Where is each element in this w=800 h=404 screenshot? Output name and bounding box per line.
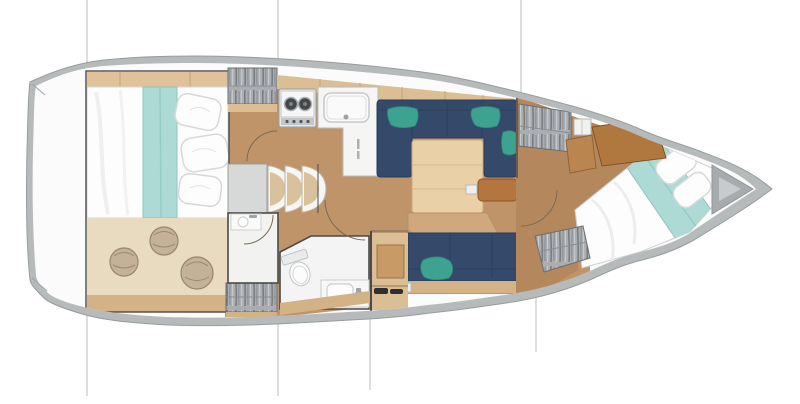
wardrobe-trim	[228, 104, 277, 112]
knob-icon	[292, 120, 295, 123]
companionway-landing	[228, 164, 267, 213]
fridge-handle	[357, 139, 360, 149]
ottoman-handle	[466, 185, 477, 194]
knob-icon	[285, 120, 288, 123]
stove	[279, 89, 316, 127]
floorplan-canvas	[0, 0, 800, 404]
settee-cushion-teal	[471, 107, 500, 128]
yacht-floorplan	[0, 0, 800, 404]
aft-cabin	[86, 71, 230, 312]
ottoman	[478, 179, 517, 201]
salon-table	[412, 140, 483, 213]
pillow	[177, 173, 222, 208]
sink-drain	[344, 115, 349, 120]
pillow	[180, 133, 231, 174]
settee-cushion-green	[421, 257, 453, 280]
cabinet-door	[377, 245, 404, 278]
dark-gear	[374, 288, 388, 294]
knob-icon	[299, 120, 302, 123]
settee-cushion-teal	[502, 131, 517, 155]
companionway-steps	[268, 166, 326, 212]
burner-center	[303, 102, 307, 106]
burner-center	[289, 102, 293, 106]
faucet-icon	[249, 215, 257, 218]
settee-cushion-teal	[387, 107, 418, 128]
dark-gear	[390, 289, 403, 294]
fwd-seat	[566, 135, 596, 173]
aft-trim	[87, 295, 228, 312]
shower-basin	[238, 217, 248, 227]
settee-trim	[400, 281, 530, 293]
knob-icon	[306, 120, 309, 123]
runner-crease	[160, 88, 161, 217]
fridge-handle	[357, 151, 360, 159]
side-cabinet	[371, 231, 408, 310]
fwd-wardrobe-top	[519, 104, 571, 152]
aft-headboard	[87, 72, 228, 87]
